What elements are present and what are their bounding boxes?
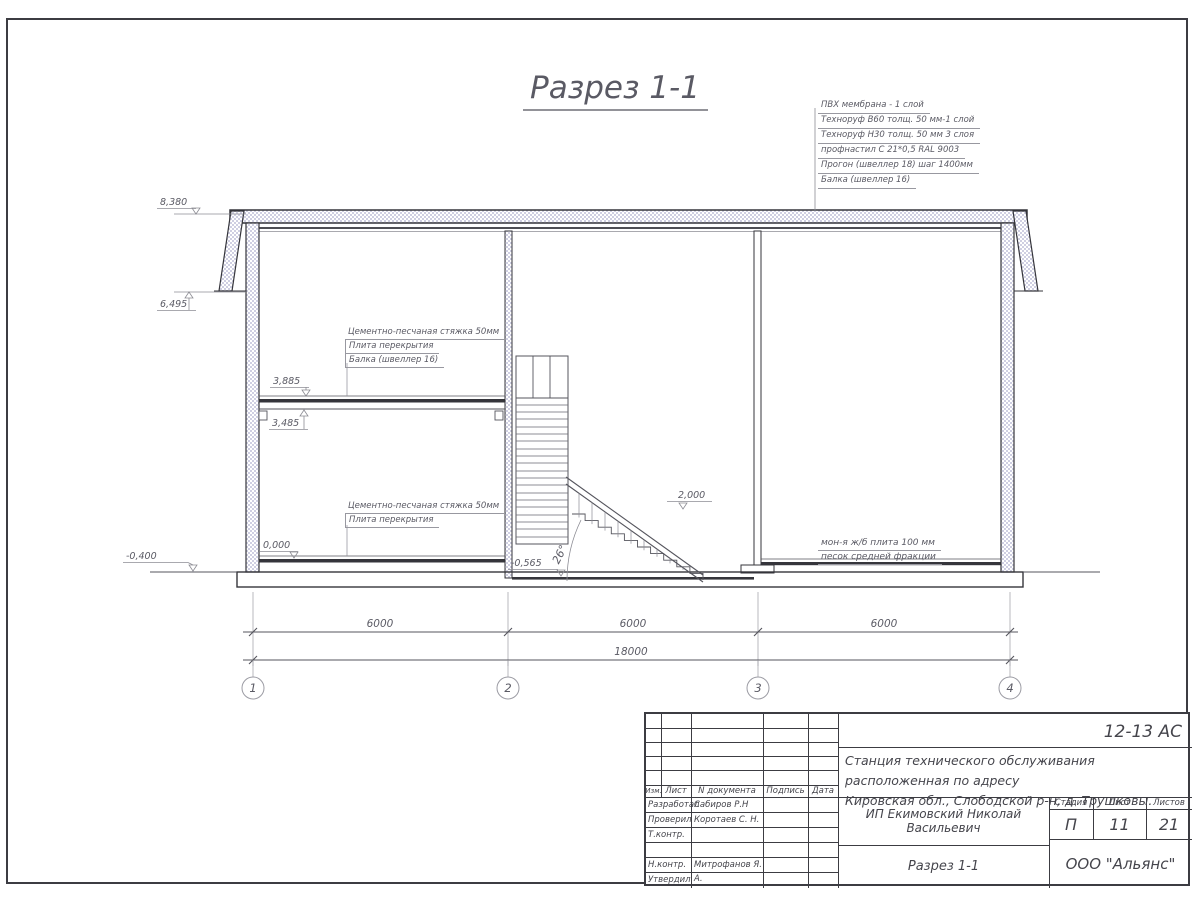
- axis3-column: [754, 231, 761, 565]
- dimension-lines: 6000 6000 6000 18000: [243, 592, 1018, 666]
- stair-steps: [572, 514, 703, 580]
- col-data: Дата: [808, 784, 838, 797]
- svg-text:-0,400: -0,400: [126, 551, 157, 562]
- col-podpis: Подпись: [763, 784, 808, 797]
- roof-spec-item: Техноруф В60 толщ. 50 мм-1 слой: [818, 114, 980, 129]
- right-wall: [1001, 223, 1014, 572]
- sheets-total: 21: [1146, 809, 1192, 839]
- angle-label: 26°: [550, 543, 570, 566]
- role-label: Утвердил: [648, 873, 691, 887]
- stair-bay-floor: [512, 577, 754, 580]
- svg-text:-0,565: -0,565: [511, 558, 542, 569]
- note-line: Цементно-песчаная стяжка 50мм: [345, 326, 505, 340]
- role-label: Проверил: [648, 813, 691, 827]
- roof-spec-item: Прогон (швеллер 18) шаг 1400мм: [818, 159, 979, 174]
- mark-slab-top: 3,885: [270, 376, 310, 396]
- role-label: Т.контр.: [648, 828, 691, 842]
- dim-total: 18000: [614, 646, 648, 658]
- stair-upper-flight: [516, 356, 568, 544]
- role-label: Н.контр.: [648, 858, 691, 872]
- dim-span-3: 6000: [871, 618, 898, 630]
- col-list: Лист: [661, 784, 691, 797]
- mark-floor: 0,000: [260, 540, 298, 558]
- axis-bubbles: 1 2 3 4: [242, 660, 1021, 699]
- axis-3: 3: [754, 681, 761, 695]
- note-line: мон-я ж/б плита 100 мм: [818, 537, 941, 551]
- role-name: Митрофанов Я. А.: [694, 858, 763, 886]
- project-name: Станция технического обслуживания распол…: [838, 747, 1192, 797]
- project-line1: Станция технического обслуживания распол…: [845, 751, 1192, 791]
- sheet-label: Лист: [1093, 797, 1146, 809]
- axis-1: 1: [249, 681, 256, 695]
- ground-slab-note: мон-я ж/б плита 100 мм песок средней фра…: [818, 537, 942, 565]
- svg-text:8,380: 8,380: [160, 197, 187, 208]
- sheet-number: 11: [1093, 809, 1146, 839]
- svg-text:6,495: 6,495: [160, 299, 187, 310]
- note-line: Плита перекрытия: [346, 514, 439, 528]
- axis-4: 4: [1006, 681, 1013, 695]
- svg-text:3,885: 3,885: [273, 376, 300, 387]
- roof-spec-note: ПВХ мембрана - 1 слой Техноруф В60 толщ.…: [818, 99, 980, 189]
- section-title: Разрез 1-1: [530, 70, 700, 106]
- sheet-title: Разрез 1-1: [838, 845, 1049, 888]
- axis-2: 2: [504, 681, 511, 695]
- drawing-title: Разрез 1-1: [523, 70, 708, 110]
- left-wall: [246, 223, 259, 572]
- roof-spec-item: ПВХ мембрана - 1 слой: [818, 99, 930, 114]
- col-ndoc: N документа: [691, 784, 763, 797]
- roof-spec-item: Техноруф Н30 толщ. 50 мм 3 слоя: [818, 129, 980, 144]
- floor2-note: Цементно-песчаная стяжка 50мм Плита пере…: [345, 326, 505, 368]
- note-line: Плита перекрытия: [346, 340, 439, 354]
- sheets-label: Листов: [1146, 797, 1192, 809]
- roof: [214, 210, 1043, 291]
- note-line: Балка (швеллер 16): [346, 354, 444, 368]
- role-name: Сабиров Р.Н: [694, 798, 763, 812]
- company-name: ООО "Альянс": [1049, 839, 1192, 888]
- stage-label: Стадия: [1049, 797, 1093, 809]
- roof-spec-item: Балка (швеллер 16): [818, 174, 916, 189]
- beam-section-left: [259, 411, 267, 420]
- note-line: Цементно-песчаная стяжка 50мм: [345, 500, 505, 514]
- svg-text:3,485: 3,485: [272, 418, 299, 429]
- doc-code: 12-13 АС: [838, 714, 1192, 747]
- mark-landing: 2,000: [667, 490, 712, 509]
- mark-eave: 6,495: [157, 292, 246, 311]
- left-eave: [219, 211, 244, 291]
- section-drawing: Разрез 1-1: [0, 0, 1200, 712]
- axis2-wall: [505, 231, 512, 578]
- role-name: Коротаев С. Н.: [694, 813, 763, 827]
- title-block: Изм. Лист N документа Подпись Дата Разра…: [644, 712, 1190, 886]
- role-label: Разработал: [648, 798, 691, 812]
- mark-ground: -0,400: [123, 551, 197, 571]
- floor1-note: Цементно-песчаная стяжка 50мм Плита пере…: [345, 500, 505, 528]
- svg-text:2,000: 2,000: [678, 490, 705, 501]
- drawing-sheet: { "sheet": { "title": "Разрез 1-1" }, "r…: [0, 0, 1200, 900]
- right-eave: [1013, 211, 1038, 291]
- roof-spec-item: профнастил С 21*0,5 RAL 9003: [818, 144, 965, 159]
- col-izm: Изм.: [646, 785, 661, 797]
- floor2-slab: [259, 396, 505, 420]
- dim-span-1: 6000: [367, 618, 394, 630]
- stage-value: П: [1049, 809, 1093, 839]
- dim-span-2: 6000: [620, 618, 647, 630]
- svg-text:0,000: 0,000: [263, 540, 290, 551]
- note-line: песок средней фракции: [818, 551, 942, 565]
- client-name: ИП Екимовский Николай Васильевич: [838, 797, 1049, 845]
- floors: [150, 556, 1100, 587]
- mark-slab-under: 3,485: [269, 410, 308, 430]
- beam-section-right: [495, 411, 503, 420]
